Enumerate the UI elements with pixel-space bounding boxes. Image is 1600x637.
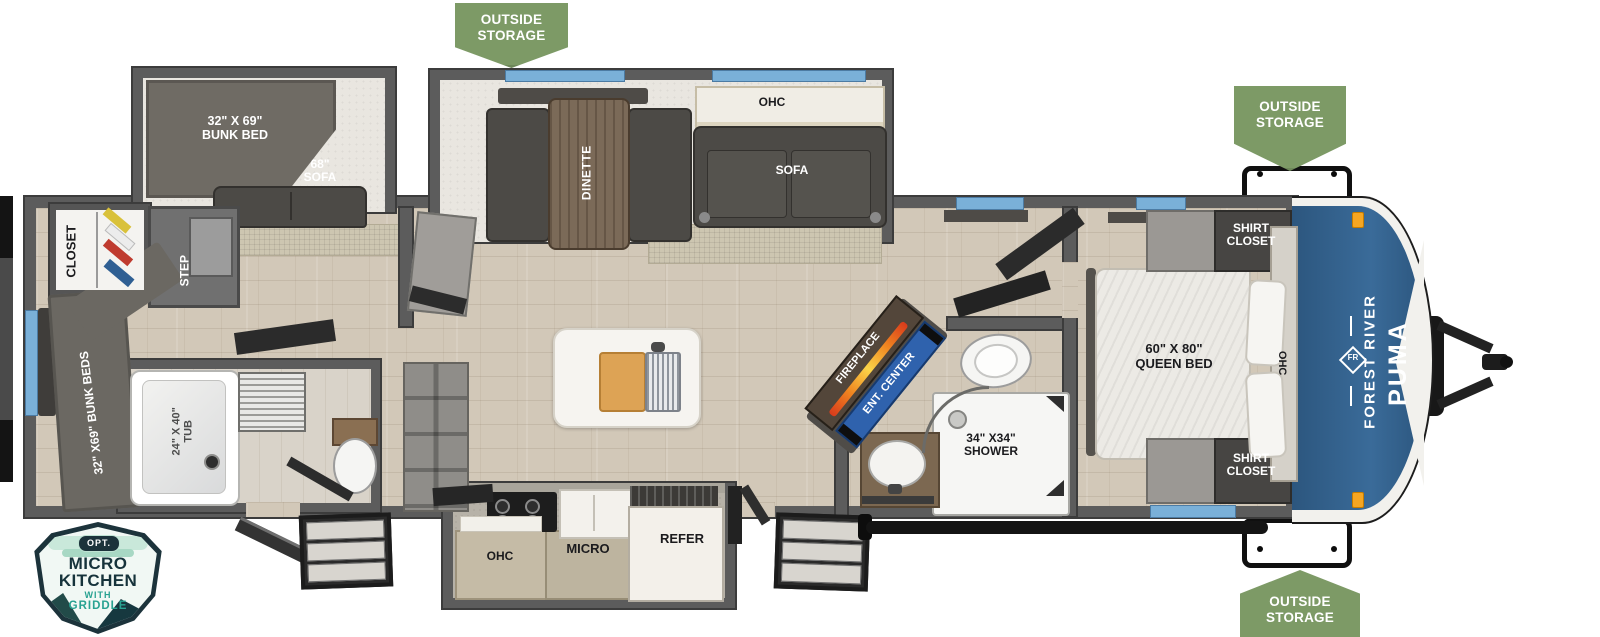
sofa-cushion: [791, 150, 871, 218]
sofa-foot: [699, 212, 710, 223]
kitchen-island: [553, 328, 701, 428]
storage-outline-dot: [1331, 546, 1337, 552]
step-tread: [781, 563, 862, 584]
step-tread: [306, 520, 385, 541]
bathtub-drain: [204, 454, 220, 470]
toilet-seat: [972, 341, 1020, 381]
step-tread: [307, 541, 386, 562]
wardrobe-shelf: [944, 210, 1028, 222]
sofa-68-size-label: 68": [290, 158, 350, 171]
bunk-bed-size-label: 32" X 69": [185, 114, 285, 128]
queen-bed-size-label: 60" X 80": [1128, 342, 1220, 357]
bedroom-ohc-label: OHC: [1276, 333, 1288, 393]
cap-logo-tick: [1350, 386, 1352, 406]
bath-wall: [948, 318, 1074, 329]
burner: [525, 499, 540, 514]
dinette-bench-left: [486, 108, 550, 242]
hitch-arm: [1436, 377, 1493, 410]
outside-storage-line2: STORAGE: [1256, 115, 1324, 131]
vanity-drawer: [862, 496, 934, 504]
rear-area-rug: [228, 224, 402, 256]
micro-kitchen-line4: GRIDDLE: [38, 600, 158, 613]
hitch-ball: [1500, 356, 1513, 368]
shower-drain: [948, 410, 967, 429]
island-faucet: [651, 342, 665, 352]
tub-label: TUB: [183, 391, 195, 471]
bedroom-door-opening: [1062, 262, 1078, 318]
outside-storage-line2: STORAGE: [1266, 610, 1334, 626]
ohc-cabinet-kitchen: [455, 530, 547, 600]
rv-floorplan: 32" X 69" BUNK BED 68" SOFA DINETTE OHC …: [0, 0, 1600, 637]
micro-kitchen-line2: KITCHEN: [38, 571, 158, 590]
outside-storage-line1: OUTSIDE: [1259, 99, 1320, 115]
hitch-arm: [1436, 321, 1493, 354]
ohc-label-dinette: OHC: [742, 96, 802, 109]
dinette-label: DINETTE: [580, 123, 593, 223]
step-label: STEP: [178, 241, 191, 301]
bath-sink: [868, 440, 926, 488]
closet-label: CLOSET: [65, 211, 80, 291]
step-window: [189, 217, 233, 277]
window: [956, 197, 1024, 210]
ohc-label-kitchen: OHC: [470, 550, 530, 563]
micro-label: MICRO: [552, 542, 624, 557]
shirt-closet-top-label2: CLOSET: [1214, 235, 1288, 248]
sofa-foot: [870, 212, 881, 223]
outside-storage-badge-top: OUTSIDE STORAGE: [455, 3, 568, 68]
forest-river-wordmark: FOREST RIVER: [1363, 261, 1380, 461]
step-tread: [307, 562, 386, 583]
door-opening: [246, 502, 300, 517]
cap-logo-tick: [1350, 316, 1352, 336]
burner: [495, 499, 510, 514]
refrigerator-coils: [630, 486, 718, 508]
step-tread: [782, 541, 863, 562]
puma-wordmark: PUMA: [1384, 303, 1412, 423]
window: [25, 310, 38, 416]
outside-storage-line1: OUTSIDE: [481, 12, 542, 28]
sink-divider: [593, 495, 595, 531]
storage-outline-dot: [1257, 546, 1263, 552]
outside-storage-badge-front-bottom: OUTSIDE STORAGE: [1240, 570, 1360, 637]
entry-door-right: [728, 486, 742, 544]
shower-size-label: 34" X34": [948, 432, 1034, 445]
cutting-board: [599, 352, 646, 412]
rear-bumper: [0, 256, 13, 422]
shirt-closet-bottom-label1: SHIRT: [1214, 452, 1288, 465]
bunk-bed-label: BUNK BED: [185, 128, 285, 142]
micro-kitchen-line3: WITH: [38, 590, 158, 600]
micro-kitchen-badge: OPT. MICRO KITCHEN WITH GRIDDLE: [33, 522, 163, 634]
micro-kitchen-badge-inner: OPT. MICRO KITCHEN WITH GRIDDLE: [38, 527, 158, 629]
shirt-closet-bottom-cabinet: [1146, 438, 1220, 504]
refer-label: REFER: [646, 532, 718, 547]
outside-storage-badge-front-top: OUTSIDE STORAGE: [1234, 86, 1346, 171]
rear-bumper-cap: [0, 196, 13, 258]
outside-storage-line1: OUTSIDE: [1269, 594, 1330, 610]
marker-light: [1352, 212, 1364, 228]
kitchen-sink: [559, 489, 633, 539]
queen-bed-label: QUEEN BED: [1128, 357, 1220, 372]
entry-steps-left: [299, 512, 394, 589]
window: [505, 70, 625, 82]
outside-storage-line2: STORAGE: [478, 28, 546, 44]
shirt-closet-bottom-label2: CLOSET: [1214, 465, 1288, 478]
counter-shelf: [460, 516, 542, 532]
sofa-68-label: SOFA: [290, 171, 350, 184]
shirt-closet-top-cabinet: [1146, 210, 1220, 272]
entry-steps-right: [774, 512, 871, 591]
awning-rail: [866, 521, 1268, 534]
refrigerator: [628, 506, 724, 602]
marker-light: [1352, 492, 1364, 508]
storage-outline-dot: [1331, 171, 1337, 177]
closet-rod: [96, 212, 98, 288]
window: [1136, 197, 1186, 210]
storage-outline-dot: [1257, 171, 1263, 177]
tub-glass-door: [238, 372, 306, 432]
sofa-label: SOFA: [762, 164, 822, 177]
shower-label: SHOWER: [948, 445, 1034, 458]
sofa-cushion: [707, 150, 787, 218]
window: [712, 70, 866, 82]
shirt-closet-top-label1: SHIRT: [1214, 222, 1288, 235]
dinette-bench-right: [628, 108, 692, 242]
rear-bumper-cap: [0, 420, 13, 482]
sofa-cushion-divider: [290, 192, 292, 220]
bath-faucet: [888, 484, 902, 494]
step-tread: [782, 520, 863, 541]
island-sink: [645, 352, 681, 412]
window: [1150, 505, 1236, 518]
fr-logo: FR: [1341, 354, 1365, 363]
opt-pill: OPT.: [78, 535, 120, 552]
tub-size-label: 24" X 40": [171, 391, 183, 471]
